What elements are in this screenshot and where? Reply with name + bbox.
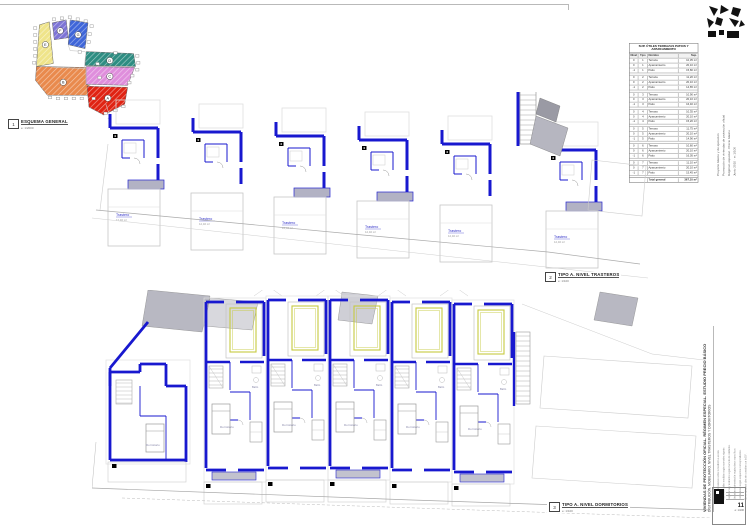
room-label-banyo: Baño xyxy=(376,383,383,387)
keyplan-zone-C: C xyxy=(86,66,135,85)
table-cell: Patio xyxy=(647,86,678,90)
drawing-title: DISTRIBUCIÓN. MOBILIARIO. NIVEL TRASTERO… xyxy=(708,328,713,512)
trastero-unit: Trastero12,40 m² xyxy=(274,108,330,254)
keyplan-unit-tag xyxy=(60,17,63,20)
room-area: 12,40 m² xyxy=(199,222,210,226)
room-label-trastero: Trastero xyxy=(116,213,129,217)
svg-text:D: D xyxy=(108,59,111,63)
table-cell: 10,35 m² xyxy=(678,110,698,114)
bed xyxy=(274,402,292,432)
keyplan-unit-tag xyxy=(84,20,87,23)
roof-plane xyxy=(594,292,638,326)
table-cell: 1 xyxy=(638,59,647,63)
keyplan-unit-tag xyxy=(131,74,134,77)
keyplan-title: ESQUEMA GENERAL xyxy=(21,119,68,125)
titleblock-note-line: No se ejecutará obra sin consultar con l… xyxy=(745,332,750,500)
dwelling-unit: DormitorioBaño xyxy=(328,296,390,502)
room-label-dormitorio: Dormitorio xyxy=(468,427,482,431)
table-cell: Patio xyxy=(647,69,678,73)
keyplan-caption: 1 ESQUEMA GENERAL e: 1/2000 xyxy=(6,119,70,130)
keyplan-unit-tag xyxy=(98,76,101,79)
table-cell: 0 xyxy=(630,81,638,85)
keyplan-unit-tag xyxy=(136,68,139,71)
keyplan-scale: e: 1/2000 xyxy=(21,126,68,130)
table-cell: 367,10 m² xyxy=(678,178,698,182)
room-label-trastero: Trastero xyxy=(448,229,461,233)
room-label-trastero: Trastero xyxy=(282,221,295,225)
table-cell: 16,05 m² xyxy=(678,154,698,158)
keyplan-unit-tag xyxy=(48,96,51,99)
keyplan-unit-tag xyxy=(72,97,75,100)
keyplan-unit-tag xyxy=(64,97,67,100)
table-header-cell: Tipo xyxy=(638,54,647,58)
keyplan-unit-tag xyxy=(87,41,90,44)
keyplan-unit-tag xyxy=(33,41,36,44)
table-cell: Aparcamiento xyxy=(647,64,678,68)
terrace-awning xyxy=(292,306,318,350)
table-cell: 2 xyxy=(638,86,647,90)
trastero-unit: Trastero12,40 m² xyxy=(191,104,243,250)
patio-outline xyxy=(532,426,696,488)
sheet-frame-tick xyxy=(568,4,569,10)
electrical-marker xyxy=(268,482,273,486)
room-label-trastero: Trastero xyxy=(365,225,378,229)
table-cell: 20,10 m² xyxy=(678,166,698,170)
bed xyxy=(336,402,354,432)
table-cell: 20,10 m² xyxy=(678,149,698,153)
table-cell: 2 xyxy=(638,76,647,80)
electrical-marker xyxy=(112,464,117,468)
roof-plane xyxy=(338,292,378,324)
table-cell: 20,10 m² xyxy=(678,64,698,68)
keyplan-unit-tag xyxy=(80,97,83,100)
table-cell: 14,65 m² xyxy=(678,86,698,90)
electrical-marker xyxy=(392,484,397,488)
dwelling-unit: DormitorioBaño xyxy=(452,300,514,506)
table-cell: 20,10 m² xyxy=(678,98,698,102)
stamp-logo xyxy=(714,489,724,504)
keyplan-unit-tag xyxy=(76,18,79,21)
room-label-banyo: Baño xyxy=(500,387,507,391)
trastero-unit: Trastero12,40 m² xyxy=(357,112,413,258)
table-cell: 11,10 m² xyxy=(678,161,698,165)
sheet-scale: e: 1/100 xyxy=(726,509,744,512)
titleblock-titles: VIVIENDAS DE PROTECCIÓN OFICIAL. RÉGIMEN… xyxy=(702,328,714,512)
table-cell: 0 xyxy=(630,64,638,68)
trastero-unit: Trastero12,40 m² xyxy=(108,100,164,246)
dwelling-unit: DormitorioBaño xyxy=(390,298,452,504)
keyplan-unit-tag xyxy=(114,52,117,55)
room-label-banyo: Baño xyxy=(438,385,445,389)
room-label-dormitorio: Dormitorio xyxy=(146,443,160,447)
keyplan-number-icon: 1 xyxy=(8,119,19,129)
titleblock-notes: Las cotas prevalecen sobre la medición a… xyxy=(717,332,737,500)
table-cell: 20,10 m² xyxy=(678,81,698,85)
table-title-line2: APARCAMIENTO xyxy=(630,48,697,52)
room-label-banyo: Baño xyxy=(252,385,259,389)
room-label-banyo: Baño xyxy=(314,383,321,387)
keyplan-unit-tag xyxy=(33,27,36,30)
table-cell: 14,90 m² xyxy=(678,137,698,141)
drawing-sheet: EFGDCBA 1 ESQUEMA GENERAL e: 1/2000 SUP.… xyxy=(0,0,750,531)
table-header-cell: Nombre xyxy=(647,54,678,58)
keyplan-unit-tag xyxy=(33,34,36,37)
patio-outline xyxy=(540,356,692,418)
table-cell: 10,60 m² xyxy=(678,144,698,148)
svg-text:C: C xyxy=(108,75,111,79)
plan-title: TIPO A. NIVEL TRASTEROS xyxy=(558,272,619,278)
table-cell: 11,20 m² xyxy=(678,76,698,80)
dwelling-unit-end: Dormitorio xyxy=(106,360,190,482)
plan-number-icon: 2 xyxy=(545,272,556,282)
bed xyxy=(398,404,416,434)
table-cell: 15,20 m² xyxy=(678,120,698,124)
plan-caption-dormitorios: 3 TIPO A. NIVEL DORMITORIOS e: 1/100 xyxy=(547,502,630,513)
keyplan-zone-F: F xyxy=(52,20,68,40)
table-cell: 0 xyxy=(630,59,638,63)
stair-tower xyxy=(514,332,530,406)
electrical-marker xyxy=(454,486,459,490)
keyplan-unit-tag xyxy=(32,62,35,65)
sheet-number-stamp: 11 e: 1/100 xyxy=(712,487,746,525)
keyplan-unit-tag xyxy=(33,55,36,58)
table-cell: 15,80 m² xyxy=(678,69,698,73)
table-cell: 10,35 m² xyxy=(678,59,698,63)
table-cell: -1 xyxy=(630,86,638,90)
table-header-cell: Nivel xyxy=(630,54,638,58)
terrace-awning xyxy=(478,310,504,354)
room-label-dormitorio: Dormitorio xyxy=(406,425,420,429)
keyplan-unit-tag xyxy=(96,62,99,65)
titleblock-project-info: Proyecto básico y de ejecuciónPromoción … xyxy=(716,44,738,176)
room-label-dormitorio: Dormitorio xyxy=(220,425,234,429)
plan-scale: e: 1/100 xyxy=(562,509,628,513)
table-cell: 15,45 m² xyxy=(678,171,698,175)
keyplan-zone-E: E xyxy=(36,22,53,67)
plan-caption-trasteros: 2 TIPO A. NIVEL TRASTEROS e: 1/100 xyxy=(543,272,621,283)
room-area: 12,40 m² xyxy=(554,240,565,244)
keyplan-unit-tag xyxy=(78,51,81,54)
electrical-marker xyxy=(330,482,335,486)
room-label-dormitorio: Dormitorio xyxy=(282,423,296,427)
stair-tower xyxy=(518,92,568,156)
titleblock-info-line: Junio 2010 · e: 1/100 xyxy=(733,44,739,176)
table-cell: Aparcamiento xyxy=(647,81,678,85)
table-cell: Terraza xyxy=(647,76,678,80)
plan-scale: e: 1/100 xyxy=(558,279,619,283)
dwelling-unit: DormitorioBaño xyxy=(204,298,266,504)
keyplan-unit-tag xyxy=(137,62,140,65)
table-header-cell: Sup. xyxy=(678,54,698,58)
table-cell: 1 xyxy=(638,69,647,73)
table-cell: 11,75 m² xyxy=(678,127,698,131)
electrical-marker xyxy=(206,484,211,488)
keyplan-unit-tag xyxy=(90,25,93,28)
keyplan-unit-tag xyxy=(88,33,91,36)
table-cell: 0 xyxy=(630,76,638,80)
table-cell: Terraza xyxy=(647,59,678,63)
keyplan-zone-D: D xyxy=(85,52,136,67)
terrace-awning xyxy=(416,308,442,352)
logo-marks xyxy=(707,5,745,38)
keyplan-unit-tag xyxy=(136,55,139,58)
bed xyxy=(212,404,230,434)
room-label-trastero: Trastero xyxy=(554,235,567,239)
bed xyxy=(460,406,478,436)
keyplan-zone-G: G xyxy=(68,20,88,49)
table-cell: -1 xyxy=(630,69,638,73)
plan-nivel-dormitorios: DormitorioDormitorioBañoDormitorioBañoDo… xyxy=(92,290,712,518)
keyplan-unit-tag xyxy=(128,81,131,84)
keyplan-unit-tag xyxy=(56,97,59,100)
office-logo xyxy=(705,4,747,42)
keyplan-unit-tag xyxy=(68,16,71,19)
room-area: 12,40 m² xyxy=(448,234,459,238)
keyplan-unit-tag xyxy=(33,48,36,51)
keyplan-unit-tag xyxy=(52,18,55,21)
table-cell: 1 xyxy=(638,64,647,68)
plan-nivel-trasteros: Trastero12,40 m²Trastero12,40 m²Trastero… xyxy=(92,92,652,292)
plan-title: TIPO A. NIVEL DORMITORIOS xyxy=(562,502,628,508)
project-title: VIVIENDAS DE PROTECCIÓN OFICIAL. RÉGIMEN… xyxy=(702,328,708,512)
room-label-dormitorio: Dormitorio xyxy=(344,423,358,427)
roof-plane xyxy=(142,290,210,332)
table-cell: 20,10 m² xyxy=(678,115,698,119)
table-cell: 16,40 m² xyxy=(678,103,698,107)
table-cell: 2 xyxy=(638,81,647,85)
table-cell: 20,10 m² xyxy=(678,132,698,136)
plan-number-icon: 3 xyxy=(549,502,560,512)
room-area: 12,40 m² xyxy=(365,230,376,234)
dwelling-unit: DormitorioBaño xyxy=(266,296,328,502)
trastero-unit: Trastero12,40 m² xyxy=(440,116,492,262)
svg-text:G: G xyxy=(77,33,80,37)
table-cell: 10,90 m² xyxy=(678,93,698,97)
